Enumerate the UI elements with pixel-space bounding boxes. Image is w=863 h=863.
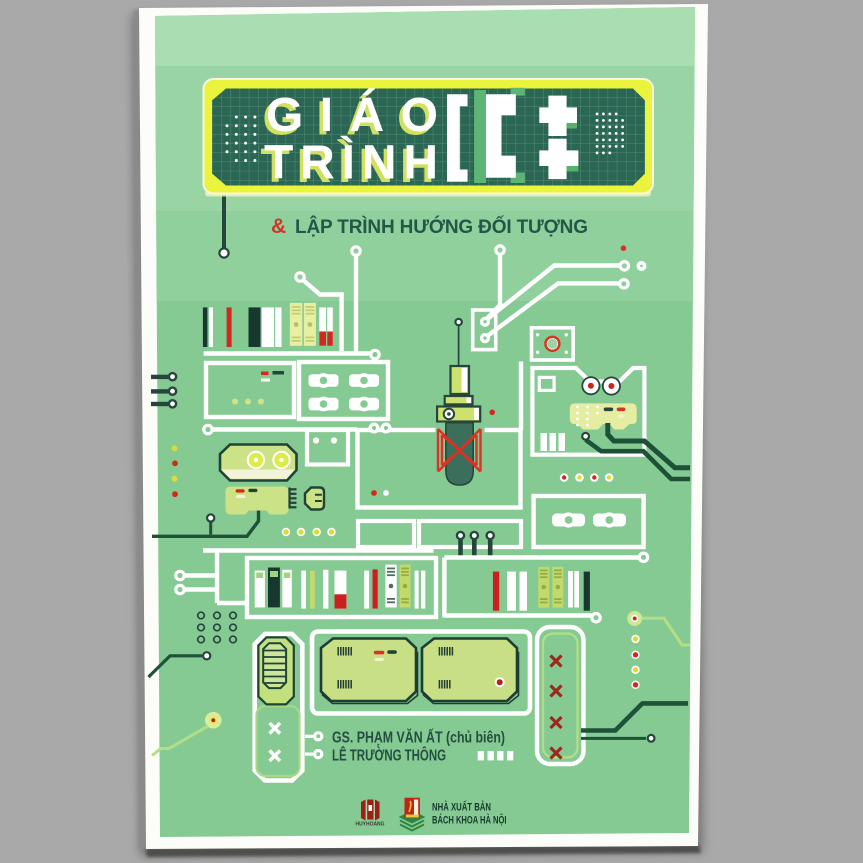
svg-text:TRÌNH: TRÌNH bbox=[264, 136, 438, 190]
svg-text:&: & bbox=[271, 215, 286, 238]
svg-text:GS. PHẠM VĂN ẤT (chủ biên): GS. PHẠM VĂN ẤT (chủ biên) bbox=[332, 728, 505, 747]
svg-text:BÁCH KHOA HÀ NỘI: BÁCH KHOA HÀ NỘI bbox=[432, 814, 507, 827]
svg-text:GIÁO: GIÁO bbox=[266, 88, 438, 142]
svg-text:HUYHOANG: HUYHOANG bbox=[356, 822, 385, 828]
svg-text:LÊ TRƯỜNG THÔNG: LÊ TRƯỜNG THÔNG bbox=[332, 746, 446, 765]
svg-text:LẬP TRÌNH HƯỚNG ĐỐI TƯỢNG: LẬP TRÌNH HƯỚNG ĐỐI TƯỢNG bbox=[295, 216, 588, 238]
svg-text:NHÀ XUẤT BẢN: NHÀ XUẤT BẢN bbox=[432, 801, 491, 814]
